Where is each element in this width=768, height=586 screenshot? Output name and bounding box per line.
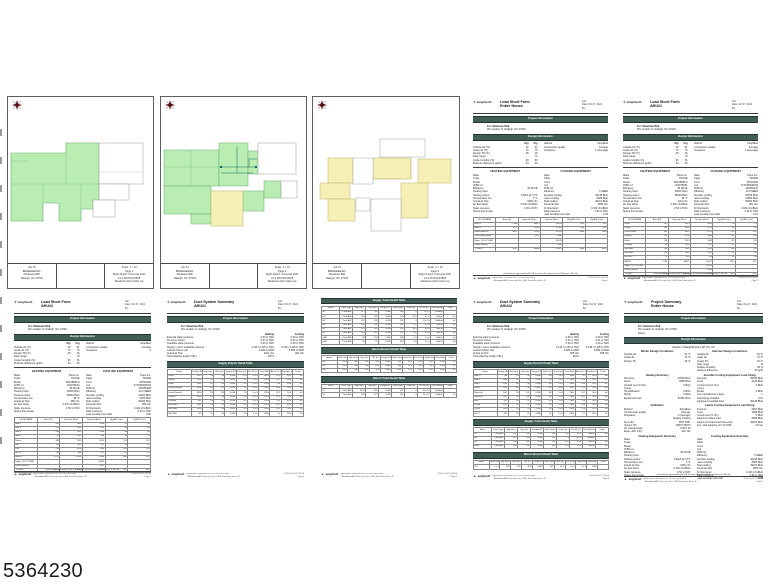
doc-footer: Calculations approved by ACCA to meet al… bbox=[623, 273, 758, 283]
page-edge-mark bbox=[0, 241, 2, 248]
table-row: st6BPeak AVF56570.0804076.00 x 0VinlFlxs… bbox=[322, 340, 457, 344]
detail-table: NameTrunk TypeHtg (cfm)Clg (cfm)Design F… bbox=[473, 427, 609, 449]
equipment-columns: MakeTrane Inc.TradeTRANEModelS9V2B040UAH… bbox=[14, 374, 151, 416]
footer-brand: wrightsoft bbox=[478, 475, 491, 478]
cooling-equipment-heading: COOLING EQUIPMENT bbox=[544, 169, 609, 173]
row-value: 0.82 bbox=[584, 213, 608, 216]
row-label: Equiv. AVF (cfm) bbox=[624, 430, 667, 433]
scanned-document-collage: Job #1Performed for:Meadows BldrRaleigh,… bbox=[0, 0, 768, 586]
doc-footer: Calculations approved by ACCA to meet al… bbox=[624, 474, 763, 484]
titleblock: Job #1Performed for:Meadows BldrRaleigh,… bbox=[8, 263, 153, 288]
table-cell: 0 x 0 bbox=[489, 465, 500, 469]
table-cell: 0 x 0 bbox=[247, 412, 258, 416]
table-cell: 50507 bbox=[540, 247, 562, 251]
doc-title: Load Short FormAHU#1 bbox=[650, 100, 732, 109]
footer-page-info: 2021-Oct-07 17:02:45Page 3 bbox=[132, 473, 151, 478]
doc-header: ✛ wrightsoftDuct System SummaryAHU#1Job:… bbox=[167, 296, 304, 310]
table-cell: 685 bbox=[500, 465, 511, 469]
footer-brand: wrightsoft bbox=[172, 473, 185, 476]
doc-title: Load Short FormEntire House bbox=[500, 100, 582, 109]
footer-file-info: Right-Suite® Universal 2021 21.0.08 RSU2… bbox=[492, 475, 589, 480]
section-bar: Design Information bbox=[624, 337, 763, 344]
row-label: Moisture difference (gr/lb) bbox=[623, 162, 670, 165]
footer-brand: wrightsoft bbox=[478, 277, 491, 280]
data-row: Total effective length (TEL)287 ft bbox=[167, 355, 304, 358]
data-row: Fireplaces1 (Average) bbox=[694, 149, 759, 152]
for-address: 45 Location Ct, Raleigh, NC 27603 bbox=[28, 328, 151, 331]
footer-file-info: Right-Suite® Universal 2021 21.0.08 RSU2… bbox=[642, 277, 738, 282]
column-group: Latent Cooling Equipment Load SizingStru… bbox=[697, 404, 764, 434]
row-label: Total effective length (TEL) bbox=[473, 355, 549, 358]
column-group: MethodSimplifiedConstruction qualityAver… bbox=[544, 142, 609, 165]
row-value: 40145 Btuh bbox=[739, 400, 763, 403]
plan-page-first-floor-zone2: Job #1Performed for:Meadows BldrRaleigh,… bbox=[160, 96, 307, 289]
equipment-headings: HEATING EQUIPMENTCOOLING EQUIPMENT bbox=[473, 167, 608, 173]
section-bar: Design Information bbox=[473, 134, 608, 141]
titleblock-line: Meadows AHU Calcs.rup bbox=[258, 280, 306, 284]
footer-row: ▲wrightsoftRight-Suite® Universal 2021 2… bbox=[624, 478, 763, 483]
equipment-headings: HEATING EQUIPMENTCOOLING EQUIPMENT bbox=[623, 167, 758, 173]
titleblock-middle bbox=[210, 264, 259, 288]
floor-plan-drawing bbox=[8, 97, 153, 288]
table-cell: WIC 2 bbox=[474, 412, 498, 416]
footer-brand: wrightsoft bbox=[628, 277, 641, 280]
row-label: Space thermostat bbox=[14, 410, 56, 413]
titleblock-left: Job #1Performed for:Meadows BldrRaleigh,… bbox=[8, 264, 57, 288]
equipment-headings: HEATING EQUIPMENTCOOLING EQUIPMENT bbox=[14, 367, 151, 373]
doc-page-load-short-form-ahu1: ✛ wrightsoftLoad Short FormAHU#1Job:Date… bbox=[619, 96, 762, 285]
column-group: MethodSimplifiedConstruction qualityAver… bbox=[86, 342, 152, 365]
table-cell: 0.080 bbox=[531, 445, 544, 449]
table-row: st9APeak AVF1461520.0804678.00 x 0VinlFl… bbox=[474, 445, 609, 449]
footer-file-path: ...\Meadows AHU Calcs.rup Calc = MJ8 Fro… bbox=[340, 476, 437, 479]
plan-page-second-floor: Job #1Performed for:Meadows BldrRaleigh,… bbox=[312, 96, 460, 289]
table-row: WIC 252122210.0804.00 x 0VlFlx7.180.0st7 bbox=[474, 412, 609, 416]
table-cell: 0 x 0 bbox=[413, 369, 424, 373]
column-group: HtgClgOutside db (°F)2291Inside db (°F)7… bbox=[473, 142, 538, 165]
table-cell: st7 bbox=[597, 412, 608, 416]
row-label: Moisture difference bbox=[697, 369, 740, 372]
table-cell: 467 bbox=[544, 445, 557, 449]
page-edge-mark bbox=[0, 325, 2, 332]
by-label: By: bbox=[732, 107, 758, 110]
column-group: HtgClgOutside db (°F)2291Inside db (°F)7… bbox=[623, 142, 688, 165]
table-row: rb30 x 034828955.00.08049812.00 x 00 x 0… bbox=[322, 369, 457, 373]
table-cell: 562 bbox=[543, 465, 554, 469]
table-cell: 16 x 12 bbox=[418, 393, 431, 397]
page-edge-mark bbox=[0, 437, 2, 444]
footer-row: ▲wrightsoftRight-Suite® Universal 2021 2… bbox=[623, 277, 758, 282]
heating-equipment-heading: HEATING EQUIPMENT bbox=[623, 169, 688, 173]
titleblock-right: Scale: 1 = 16Page 3Right-Suite® Universa… bbox=[411, 264, 459, 288]
by-label: By: bbox=[278, 307, 304, 310]
titleblock-right: Scale: 1 = 16Page 1Right-Suite® Universa… bbox=[105, 264, 153, 288]
doc-title: Load Short FormAHU#2 bbox=[41, 300, 125, 309]
cooling-equipment-heading: COOLING EQUIPMENT bbox=[694, 169, 759, 173]
row-label: Total effective length (TEL) bbox=[167, 355, 244, 358]
project-for-block: For: Meadows Bldr45 Location Ct, Raleigh… bbox=[637, 125, 758, 132]
heating-equipment-heading: HEATING EQUIPMENT bbox=[14, 369, 80, 373]
titleblock-line: Right-Suite® Universal 2021 bbox=[258, 273, 306, 277]
column-group: MakeTrane Inc.TradeTRANEModelS9V2B040UAH… bbox=[14, 374, 80, 416]
static-pressure-block: HeatingCoolingExternal static pressure0.… bbox=[167, 333, 304, 359]
row-label: Equipment sensible load bbox=[697, 400, 740, 403]
doc-header: ✛ wrightsoftLoad Short FormEntire HouseJ… bbox=[473, 96, 608, 110]
summary-pair: InfiltrationMethodSimplifiedConstruction… bbox=[624, 404, 763, 434]
table-cell: 521 bbox=[497, 412, 508, 416]
footer-page-number: Page 5 bbox=[438, 476, 457, 479]
doc-title-line2: AHU#1 bbox=[194, 304, 278, 308]
for-address: 45 Location Ct, Raleigh, NC 27603 bbox=[181, 328, 304, 331]
footer-page-number: Page 4 bbox=[285, 476, 304, 479]
data-row: Equipment sensible load40145 Btuh bbox=[697, 400, 764, 403]
doc-title: Duct System SummaryAHU#1 bbox=[194, 300, 278, 309]
data-row: Fireplaces0 bbox=[86, 349, 152, 352]
by-label: By: bbox=[737, 307, 763, 310]
table-cell: 1846 bbox=[563, 247, 585, 251]
page-edge-mark bbox=[0, 381, 2, 388]
section-bar: Design Information bbox=[14, 334, 151, 341]
footer-brand: wrightsoft bbox=[326, 473, 339, 476]
column-group: Winter Design ConditionsOutside db22 °FI… bbox=[624, 350, 691, 373]
data-row: Total effective length (TEL)254 ft bbox=[473, 355, 609, 358]
table-cell: rt1 bbox=[443, 393, 456, 397]
table-cell: 57 bbox=[366, 340, 379, 344]
table-cell: 4.0 bbox=[542, 412, 553, 416]
row-label: Design TD bbox=[624, 360, 667, 363]
detail-table: NameDesign (Btuh)Htg (cfm)Clg (cfm)Desig… bbox=[473, 369, 609, 416]
detail-table: NameDesign (Btuh)Htg (cfm)Clg (cfm)Desig… bbox=[167, 369, 304, 416]
section-bar: Return Branch Detail Table bbox=[321, 347, 457, 354]
table-cell: 348 bbox=[348, 369, 359, 373]
footer-file-info: Right-Suite® Universal 2021 21.0.08 RSU2… bbox=[340, 473, 437, 478]
table-cell: rb3 bbox=[322, 369, 338, 373]
column-group: MakeTrane Inc.TradeTRANECond4TTR4030Coil… bbox=[86, 374, 152, 416]
table-cell: VinlFlx bbox=[582, 445, 595, 449]
job-date-block: Job:Date: Oct 07, 2021By: bbox=[125, 300, 151, 310]
table-cell: 0 x 0 bbox=[576, 465, 587, 469]
summary-pair: Heating SummaryStructure47626 BtuhDucts9… bbox=[624, 374, 763, 404]
by-label: By: bbox=[582, 107, 608, 110]
table-row: Mstr WIC74325200.0804.00 x 0VlFlx7.680.0… bbox=[168, 412, 304, 416]
table-row: rb40 x 068569549.60.08056214.00 x 00 x 0… bbox=[474, 465, 609, 469]
row-value: 34 bbox=[520, 162, 529, 165]
project-for-block: For: Meadows Bldr45 Location Ct, Raleigh… bbox=[28, 325, 151, 332]
table-cell: st9A bbox=[474, 445, 492, 449]
for-address: 45 Location Ct, Raleigh, NC 27603 bbox=[487, 328, 609, 331]
table-cell: 22 bbox=[508, 412, 519, 416]
footer-page-number: Page 6 bbox=[590, 478, 609, 481]
table-cell: 146 bbox=[505, 445, 518, 449]
wrightsoft-logo: ✛ wrightsoft bbox=[624, 300, 651, 304]
detail-table: NameGrille Size (in)Htg (cfm)Clg (cfm)TE… bbox=[321, 355, 457, 373]
data-row: Equipment load57261 Btuh bbox=[624, 397, 691, 400]
acca-approved-line: Calculations approved by ACCA to meet al… bbox=[14, 469, 151, 473]
brand-name: wrightsoft bbox=[626, 100, 641, 104]
page-edge-mark bbox=[0, 129, 2, 136]
data-row: Space thermostat bbox=[14, 410, 80, 413]
row-value bbox=[579, 355, 609, 358]
table-cell: 695 bbox=[511, 465, 522, 469]
footer-page-number: Page 3 bbox=[132, 476, 151, 479]
equipment-columns: MakeTrane Inc.TradeTRANEModelS9V2B060UAH… bbox=[623, 174, 758, 216]
detail-table: ROOM NAMEArea (ft²)Htg load (Btuh)Clg lo… bbox=[623, 217, 758, 277]
column-group: Sensible Cooling Equipment Load SizingSt… bbox=[697, 374, 764, 404]
doc-title: Project SummaryEntire House bbox=[651, 300, 737, 309]
page-edge-mark bbox=[0, 185, 2, 192]
row-label: Fireplaces bbox=[694, 149, 733, 152]
wrightsoft-footer-logo-icon: ▲ bbox=[473, 475, 476, 478]
table-cell: 0 x 0 bbox=[553, 412, 564, 416]
table-cell: 1656 bbox=[585, 247, 607, 251]
data-row: Equiv. AVF (cfm)232 122 bbox=[624, 430, 691, 433]
table-cell: 0 x 0 bbox=[418, 340, 431, 344]
table-cell: Peak AVF bbox=[492, 445, 505, 449]
wrightsoft-footer-logo-icon: ▲ bbox=[167, 473, 170, 476]
doc-header: ✛ wrightsoftProject SummaryEntire HouseJ… bbox=[624, 296, 763, 310]
table-cell: 498 bbox=[391, 369, 402, 373]
doc-page-project-summary: ✛ wrightsoftProject SummaryEntire HouseJ… bbox=[620, 296, 767, 486]
table-cell: Mstr WIC bbox=[168, 412, 192, 416]
data-row: Load sensible heat ratio0.82 bbox=[544, 213, 609, 216]
column-group: MakeTradeCondCoilAHRI refEfficiency0 SEE… bbox=[544, 174, 609, 216]
column-group: HtgClgOutside db (°F)2291Inside db (°F)7… bbox=[14, 342, 80, 365]
footer-brand: wrightsoft bbox=[19, 473, 32, 476]
row-label: Space thermostat bbox=[623, 210, 664, 213]
detail-table: NameGrille Size (in)Htg (cfm)Clg (cfm)TE… bbox=[473, 460, 609, 469]
brand-name: wrightsoft bbox=[170, 300, 185, 304]
footer-page-info: 2021-Oct-07 17:02:45Page 7 bbox=[744, 478, 763, 483]
table-cell: 55.0 bbox=[370, 369, 381, 373]
row-label: Space thermostat bbox=[473, 210, 514, 213]
row-value: 30 bbox=[529, 162, 538, 165]
titleblock-line: Right-Suite® Universal 2021 bbox=[105, 273, 153, 277]
for-address: 45 Location Ct, Raleigh, NC 27603 bbox=[637, 128, 758, 131]
table-cell: 0.080 bbox=[379, 393, 392, 397]
table-cell: rt2 bbox=[322, 393, 340, 397]
acca-approved-line: Calculations approved by ACCA to meet al… bbox=[473, 273, 608, 277]
footer-file-path: ...\Meadows AHU Calcs.rup Calc = MJ8 Fro… bbox=[33, 476, 131, 479]
section-bar: Supply Trunk Detail Table bbox=[321, 298, 457, 305]
table-cell: 0 x 0 bbox=[424, 369, 435, 373]
table-row: TOTALS3657604685050718461656 bbox=[474, 247, 608, 251]
data-row: Moisture difference30 gr/lb bbox=[697, 369, 764, 372]
section-bar: Project Information bbox=[623, 116, 758, 123]
row-label: Moisture difference (gr/lb) bbox=[473, 162, 520, 165]
doc-footer: Calculations approved by ACCA to meet al… bbox=[473, 273, 608, 283]
by-label: By: bbox=[583, 307, 609, 310]
table-cell: 0 x 0 bbox=[565, 465, 576, 469]
titleblock-middle bbox=[57, 264, 106, 288]
header-rule bbox=[473, 313, 609, 314]
table-cell: rt1 bbox=[446, 369, 457, 373]
acca-approved-line: Calculations approved by ACCA to meet al… bbox=[624, 474, 763, 478]
row-value: 30 bbox=[679, 162, 688, 165]
section-bar: Project Information bbox=[167, 316, 304, 323]
page-edge-mark bbox=[0, 409, 2, 416]
data-row: Space thermostat bbox=[623, 210, 688, 213]
footer-file-info: Right-Suite® Universal 2021 21.0.08 RSU2… bbox=[186, 473, 284, 478]
column-group: Summer Design ConditionsOutside db91 °FI… bbox=[697, 350, 764, 373]
row-value: 287 ft bbox=[244, 355, 274, 358]
project-for-block: For: Meadows Bldr45 Location Ct, Raleigh… bbox=[487, 125, 608, 132]
row-label: Fireplaces bbox=[544, 149, 583, 152]
column-group: InfiltrationMethodSimplifiedConstruction… bbox=[624, 404, 691, 434]
footer-file-path: ...\Meadows AHU Calcs.rup Calc = MJ8 Fro… bbox=[642, 280, 738, 283]
table-cell: 0.080 bbox=[379, 340, 392, 344]
photo-id-label: 5364230 bbox=[3, 560, 83, 583]
row-value: 34 bbox=[670, 162, 679, 165]
table-cell: 0.080 bbox=[225, 412, 236, 416]
row-value: 30 gr/lb bbox=[739, 369, 763, 372]
row-value: 30 bbox=[71, 362, 80, 365]
section-bar: Project Information bbox=[14, 316, 151, 323]
header-rule bbox=[623, 113, 758, 114]
doc-title-line2: Entire House bbox=[651, 304, 737, 308]
footer-file-path: ...\Meadows AHU Calcs.rup Calc = MJ8 Fro… bbox=[643, 481, 743, 484]
data-row: Load sensible heat ratio0.81 bbox=[694, 213, 759, 216]
table-row: rt2Peak AVF6965770.080587016 x 12ShtMetl… bbox=[322, 393, 457, 397]
footer-row: ▲wrightsoftRight-Suite® Universal 2021 2… bbox=[167, 473, 304, 478]
brand-name: wrightsoft bbox=[476, 300, 491, 304]
job-date-block: Job:Date: Oct 07, 2021By: bbox=[278, 300, 304, 310]
page-edge-mark bbox=[0, 297, 2, 304]
section-bar: Project Information bbox=[473, 316, 609, 323]
wrightsoft-logo: ✛ wrightsoft bbox=[167, 300, 194, 304]
brand-name: wrightsoft bbox=[17, 300, 32, 304]
table-cell: 60468 bbox=[518, 247, 540, 251]
section-bar: Project Information bbox=[624, 316, 763, 323]
row-value: 254 ft bbox=[549, 355, 579, 358]
doc-page-load-short-form-ahu2: ✛ wrightsoftLoad Short FormAHU#2Job:Date… bbox=[10, 296, 155, 481]
brand-name: wrightsoft bbox=[476, 100, 491, 104]
table-cell: 25 bbox=[202, 412, 213, 416]
cooling-equipment-heading: COOLING EQUIPMENT bbox=[86, 369, 152, 373]
doc-footer: ▲wrightsoftRight-Suite® Universal 2021 2… bbox=[473, 475, 609, 480]
row-value: 48 °F bbox=[667, 360, 691, 363]
section-bar: Supply Branch Detail Table bbox=[167, 361, 304, 368]
row-label: Moisture difference (gr/lb) bbox=[14, 362, 62, 365]
titleblock-right: Scale: 1 = 16Page 2Right-Suite® Universa… bbox=[258, 264, 306, 288]
job-date-block: Job:Date: Oct 07, 2021By: bbox=[732, 100, 758, 110]
header-rule bbox=[624, 313, 763, 314]
doc-title-line2: AHU#2 bbox=[41, 304, 125, 308]
weather-line: Weather: Raleigh/Durham AP, NC, US bbox=[624, 346, 763, 349]
wrightsoft-footer-logo-icon: ▲ bbox=[473, 277, 476, 280]
table-cell: 0 x 0 bbox=[570, 445, 583, 449]
notes-label: Notes: bbox=[638, 332, 763, 335]
data-row: Moisture difference (gr/lb)3430 bbox=[623, 162, 688, 165]
section-bar: Supply Branch Detail Table bbox=[473, 361, 609, 368]
row-label: Req. total capacity at 0.70 SHR bbox=[697, 424, 740, 427]
page-edge-mark bbox=[0, 157, 2, 164]
titleblock-line: Raleigh, NC 27603 bbox=[161, 277, 209, 281]
table-cell: 6.0 bbox=[405, 340, 418, 344]
data-row: Moisture difference (gr/lb)3430 bbox=[14, 362, 80, 365]
floor-plan-drawing bbox=[161, 97, 306, 288]
footer-page-info: 2021-Oct-07 17:02:45Page 1 bbox=[589, 277, 608, 282]
row-value bbox=[56, 410, 80, 413]
table-cell: 56 bbox=[353, 340, 366, 344]
footer-page-info: 2021-Oct-07 17:02:45Page 2 bbox=[739, 277, 758, 282]
table-cell: VlFlx bbox=[435, 369, 446, 373]
section-bar: Design Information bbox=[623, 134, 758, 141]
table-cell: st6 bbox=[443, 340, 456, 344]
table-cell: 21 bbox=[519, 412, 530, 416]
footer-file-path: ...\Meadows AHU Calcs.rup Calc = MJ8 Fro… bbox=[492, 478, 589, 481]
detail-table: ROOM NAMEArea (ft²)Htg load (Btuh)Clg lo… bbox=[473, 217, 608, 252]
footer-page-info: 2021-Oct-07 17:02:45Page 4 bbox=[285, 473, 304, 478]
titleblock-line: Meadows AHU Calcs.rup bbox=[105, 280, 153, 284]
job-date-block: Job:Date: Oct 07, 2021By: bbox=[583, 300, 609, 310]
page-edge-mark bbox=[0, 353, 2, 360]
footer-file-info: Right-Suite® Universal 2021 21.0.08 RSU2… bbox=[643, 478, 743, 483]
column-group: MethodSimplifiedConstruction qualityAver… bbox=[694, 142, 759, 165]
wrightsoft-footer-logo-icon: ▲ bbox=[321, 473, 324, 476]
table-cell: 0 x 0 bbox=[337, 369, 348, 373]
footer-row: ▲wrightsoftRight-Suite® Universal 2021 2… bbox=[473, 277, 608, 282]
project-for-block: For: Meadows Bldr45 Location Ct, Raleigh… bbox=[181, 325, 304, 332]
doc-footer: ▲wrightsoftRight-Suite® Universal 2021 2… bbox=[321, 473, 457, 478]
column-group: MakeTradeModelAHRI refEfficiency80 AFUEH… bbox=[473, 174, 538, 216]
design-info: HtgClgOutside db (°F)2291Inside db (°F)7… bbox=[14, 342, 151, 365]
table-cell: 577 bbox=[366, 393, 379, 397]
table-cell: 8.0 bbox=[557, 445, 570, 449]
table-cell: VlFlx bbox=[564, 412, 575, 416]
section-bar: Return Branch Detail Table bbox=[473, 452, 609, 459]
floor-plan-drawing bbox=[313, 97, 459, 288]
table-cell: 20 bbox=[214, 412, 225, 416]
table-cell: VlFlx bbox=[587, 465, 598, 469]
page-edge-mark bbox=[0, 213, 2, 220]
doc-title-line2: Entire House bbox=[500, 104, 582, 108]
footer-brand: wrightsoft bbox=[629, 478, 642, 481]
detail-table: NameTrunk TypeHtg (cfm)Clg (cfm)Design F… bbox=[321, 384, 457, 398]
table-cell: 7.1 bbox=[575, 412, 586, 416]
table-cell: 80.0 bbox=[281, 412, 292, 416]
detail-table: ROOM NAMEArea (ft²)Htg load (Btuh)Clg lo… bbox=[14, 417, 151, 473]
data-row: Design TD48 °F bbox=[624, 360, 691, 363]
data-row: Req. total capacity at 0.70 SHR4.8 ton bbox=[697, 424, 764, 427]
table-cell: Peak AVF bbox=[340, 340, 353, 344]
by-label: By: bbox=[125, 307, 151, 310]
plan-page-first-floor-zone1: Job #1Performed for:Meadows BldrRaleigh,… bbox=[7, 96, 154, 289]
doc-header: ✛ wrightsoftLoad Short FormAHU#2Job:Date… bbox=[14, 296, 151, 310]
doc-header: ✛ wrightsoftLoad Short FormAHU#1Job:Date… bbox=[623, 96, 758, 110]
section-bar: Return Trunk Detail Table bbox=[321, 376, 457, 383]
row-label: Load sensible heat ratio bbox=[694, 213, 735, 216]
table-cell: Peak AVF bbox=[340, 393, 353, 397]
table-cell: 0.080 bbox=[532, 465, 543, 469]
data-row: Space thermostat bbox=[473, 210, 538, 213]
footer-file-path: ...\Meadows AHU Calcs.rup Calc = MJ8 Fro… bbox=[492, 280, 588, 283]
detail-table: NameTrunk TypeHtg (cfm)Clg (cfm)Design F… bbox=[321, 306, 457, 345]
row-label: Load sensible heat ratio bbox=[86, 413, 128, 416]
summary-pair: Winter Design ConditionsOutside db22 °FI… bbox=[624, 350, 763, 373]
wrightsoft-logo: ✛ wrightsoft bbox=[623, 100, 650, 104]
titleblock: Job #1Performed for:Meadows BldrRaleigh,… bbox=[313, 263, 459, 288]
wrightsoft-logo: ✛ wrightsoft bbox=[14, 300, 41, 304]
table-cell: st1 bbox=[292, 412, 303, 416]
row-value: 1 (Average) bbox=[732, 149, 758, 152]
table-cell: 0.080 bbox=[380, 369, 391, 373]
row-value: 34 bbox=[62, 362, 71, 365]
table-cell: 14.0 bbox=[554, 465, 565, 469]
doc-page-duct-system-summary-ahu2: ✛ wrightsoftDuct System SummaryAHU#2Job:… bbox=[469, 296, 613, 483]
wrightsoft-logo: ✛ wrightsoft bbox=[473, 300, 500, 304]
column-group: MakeTrane Inc.TradeTRANECond4TTR4036Coil… bbox=[694, 174, 759, 216]
titleblock-left: Job #1Performed for:Meadows BldrRaleigh,… bbox=[161, 264, 210, 288]
